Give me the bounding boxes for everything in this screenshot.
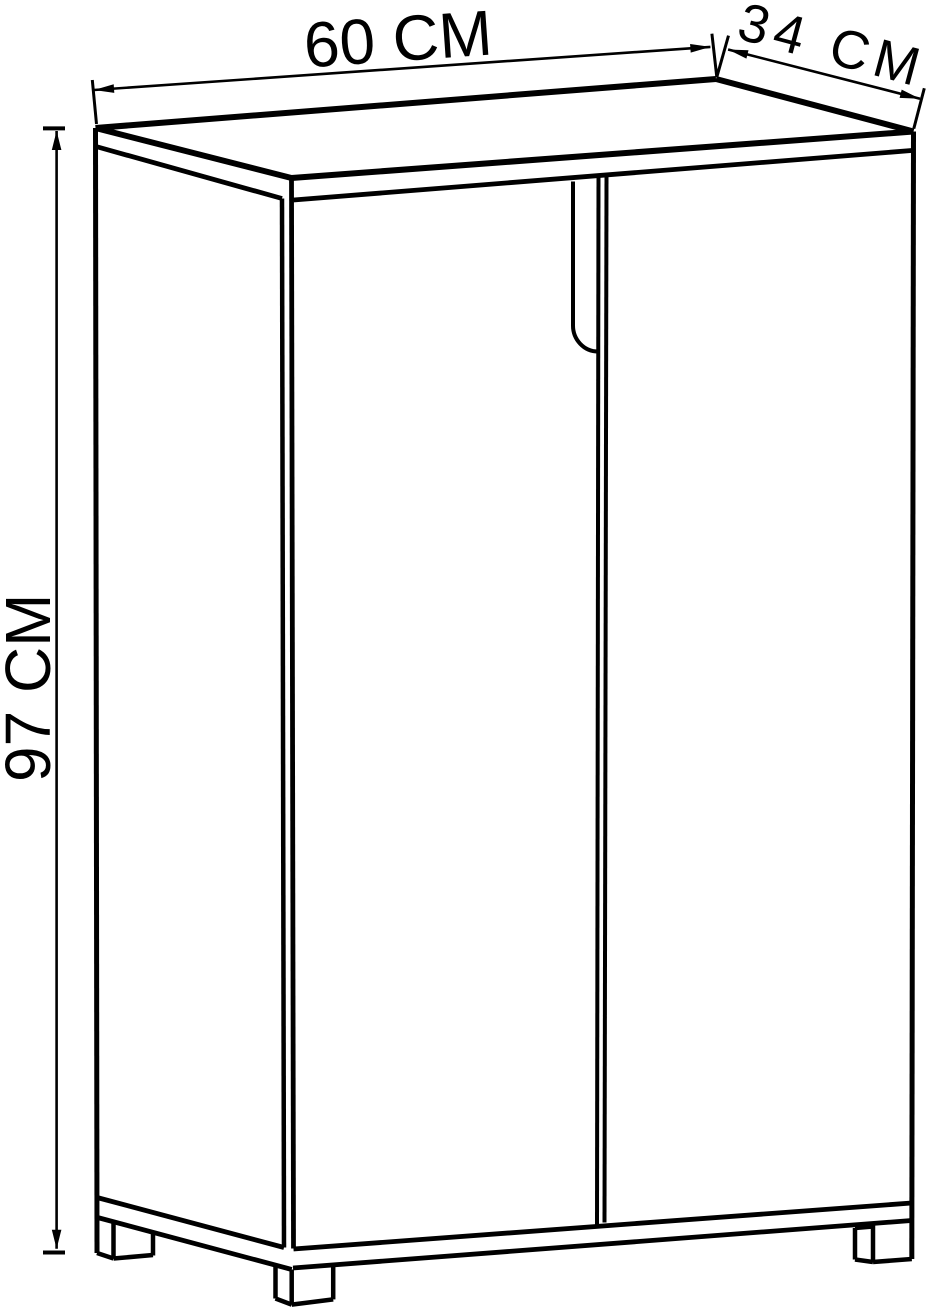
svg-text:97 CM: 97 CM (0, 594, 64, 783)
svg-text:60 CM: 60 CM (301, 0, 494, 81)
svg-text:34 CM: 34 CM (732, 0, 927, 99)
